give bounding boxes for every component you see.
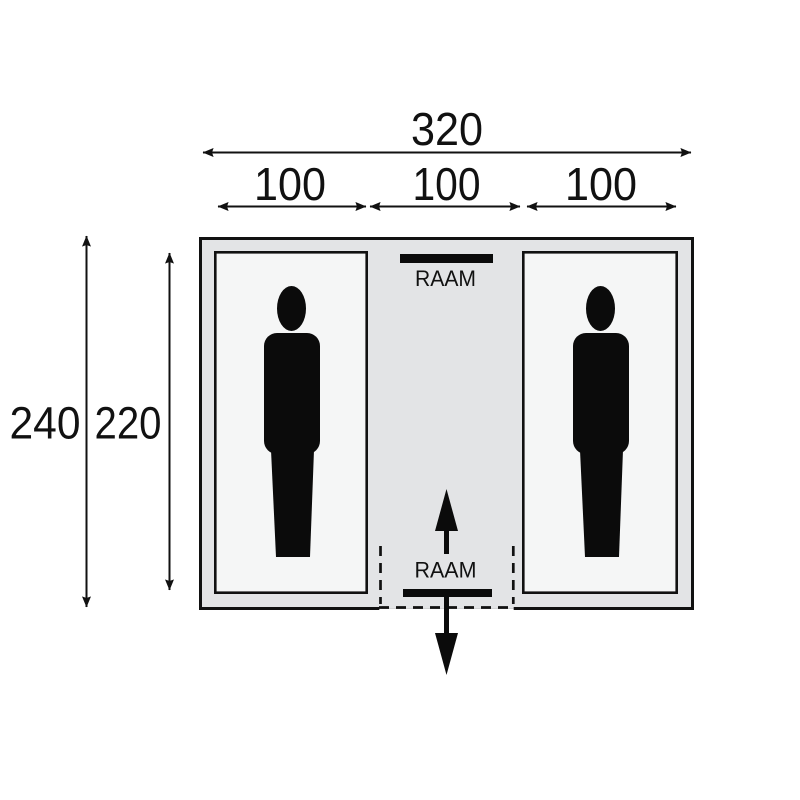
- svg-text:RAAM: RAAM: [415, 266, 476, 291]
- svg-text:RAAM: RAAM: [415, 558, 477, 583]
- svg-text:220: 220: [95, 398, 162, 449]
- svg-text:320: 320: [411, 103, 483, 155]
- svg-text:100: 100: [413, 158, 481, 210]
- svg-text:100: 100: [254, 158, 326, 210]
- svg-text:240: 240: [10, 398, 81, 449]
- svg-text:100: 100: [565, 158, 637, 210]
